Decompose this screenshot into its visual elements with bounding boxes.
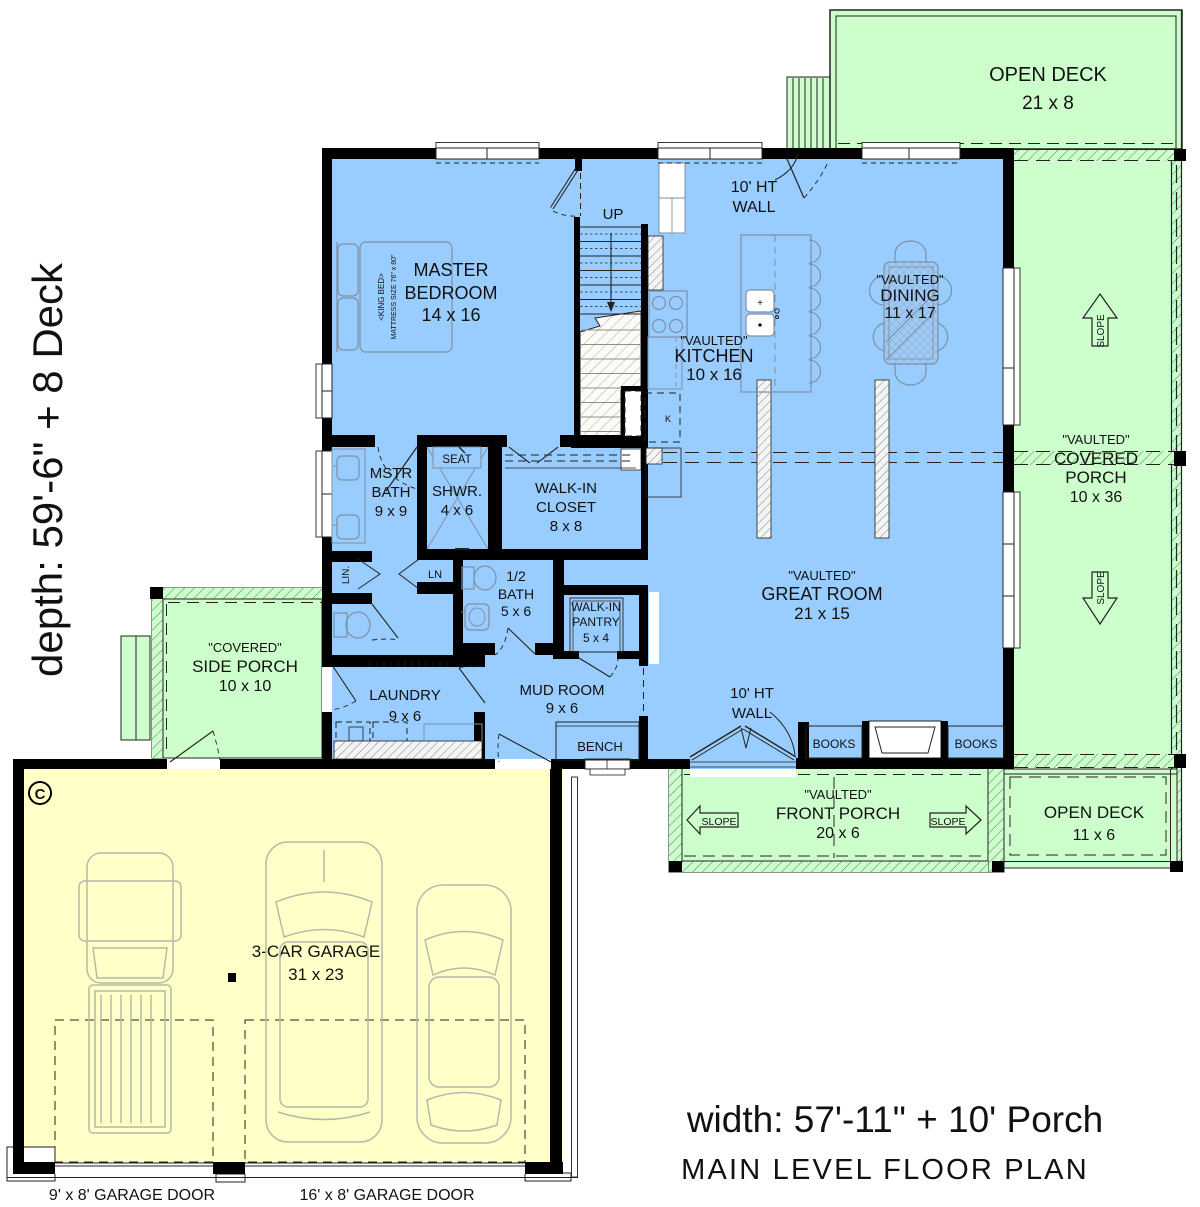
svg-text:10' HT: 10' HT: [730, 685, 774, 702]
svg-text:PANTRY: PANTRY: [572, 615, 620, 629]
svg-text:OPEN DECK: OPEN DECK: [989, 64, 1107, 86]
svg-text:SEAT: SEAT: [442, 454, 471, 466]
svg-text:16' x 8' GARAGE DOOR: 16' x 8' GARAGE DOOR: [299, 1187, 474, 1204]
svg-text:"VAULTED": "VAULTED": [876, 272, 944, 287]
svg-text:SLOPE: SLOPE: [930, 816, 965, 828]
svg-text:31 x 23: 31 x 23: [288, 965, 344, 984]
svg-text:4 x 6: 4 x 6: [441, 502, 474, 519]
svg-text:UP: UP: [603, 206, 624, 223]
svg-text:LAUNDRY: LAUNDRY: [369, 687, 440, 704]
svg-text:PORCH: PORCH: [1065, 468, 1126, 487]
svg-text:BOOKS: BOOKS: [813, 737, 856, 751]
svg-text:<KING BED>: <KING BED>: [377, 273, 386, 321]
svg-text:width: 57'-11" + 10' Porch: width: 57'-11" + 10' Porch: [686, 1099, 1103, 1140]
svg-text:5 x 6: 5 x 6: [501, 603, 532, 619]
svg-text:SLOPE: SLOPE: [1096, 314, 1107, 348]
svg-text:C: C: [35, 786, 46, 803]
svg-text:BENCH: BENCH: [577, 739, 623, 754]
svg-text:9 x 9: 9 x 9: [375, 503, 408, 520]
svg-text:11 x 17: 11 x 17: [884, 305, 935, 322]
svg-text:LN: LN: [428, 569, 442, 581]
svg-text:10 x 16: 10 x 16: [686, 365, 742, 384]
svg-text:BOOKS: BOOKS: [955, 737, 998, 751]
svg-text:OPEN DECK: OPEN DECK: [1044, 803, 1145, 822]
svg-text:BEDROOM: BEDROOM: [404, 283, 497, 303]
svg-text:DINING: DINING: [880, 286, 940, 305]
svg-text:BATH: BATH: [372, 484, 411, 501]
svg-text:BATH: BATH: [498, 586, 534, 602]
svg-text:10 x 36: 10 x 36: [1070, 489, 1123, 506]
svg-text:MSTR: MSTR: [370, 465, 413, 482]
svg-text:"COVERED": "COVERED": [208, 640, 282, 655]
svg-text:1/2: 1/2: [506, 568, 526, 584]
svg-text:9 x 6: 9 x 6: [389, 708, 422, 725]
svg-text:9 x 6: 9 x 6: [546, 700, 579, 717]
svg-text:21 x 8: 21 x 8: [1022, 93, 1074, 114]
svg-text:SIDE PORCH: SIDE PORCH: [192, 657, 298, 676]
svg-text:10 x 10: 10 x 10: [219, 678, 272, 695]
svg-text:SLOPE: SLOPE: [1096, 571, 1107, 605]
svg-text:9' x 8' GARAGE DOOR: 9' x 8' GARAGE DOOR: [49, 1187, 215, 1204]
svg-text:21 x 15: 21 x 15: [794, 604, 850, 623]
svg-text:WALK-IN: WALK-IN: [535, 480, 597, 497]
svg-text:WALK-IN: WALK-IN: [571, 600, 621, 614]
svg-text:+: +: [757, 298, 763, 309]
svg-text:MATTRESS SIZE 76" x 80": MATTRESS SIZE 76" x 80": [391, 254, 398, 339]
svg-text:"VAULTED": "VAULTED": [1062, 432, 1130, 447]
svg-text:20 x 6: 20 x 6: [816, 825, 860, 842]
svg-text:WALL: WALL: [733, 199, 776, 216]
svg-text:14 x 16: 14 x 16: [421, 305, 480, 325]
svg-text:"VAULTED": "VAULTED": [788, 568, 856, 583]
svg-text:8 x 8: 8 x 8: [550, 518, 583, 535]
svg-text:FRONT PORCH: FRONT PORCH: [776, 804, 900, 823]
svg-text:SHWR.: SHWR.: [432, 483, 482, 500]
svg-text:"VAULTED": "VAULTED": [804, 787, 872, 802]
svg-text:MUD ROOM: MUD ROOM: [520, 682, 605, 699]
svg-text:K: K: [665, 414, 671, 424]
svg-text:depth: 59'-6" + 8 Deck: depth: 59'-6" + 8 Deck: [24, 262, 71, 677]
svg-text:KITCHEN: KITCHEN: [674, 346, 753, 366]
svg-text:WALL: WALL: [732, 705, 772, 722]
svg-text:CLOSET: CLOSET: [536, 499, 596, 516]
svg-text:LIN.: LIN.: [341, 566, 352, 584]
svg-text:GREAT ROOM: GREAT ROOM: [761, 584, 882, 604]
svg-text:3-CAR GARAGE: 3-CAR GARAGE: [252, 942, 380, 961]
svg-text:5 x 4: 5 x 4: [583, 631, 609, 645]
svg-text:COVERED: COVERED: [1054, 449, 1138, 468]
svg-text:MASTER: MASTER: [413, 260, 488, 280]
svg-text:10' HT: 10' HT: [731, 179, 778, 196]
svg-text:11 x 6: 11 x 6: [1073, 827, 1116, 844]
svg-text:SLOPE: SLOPE: [701, 816, 736, 828]
svg-text:MAIN LEVEL FLOOR PLAN: MAIN LEVEL FLOOR PLAN: [681, 1154, 1089, 1186]
